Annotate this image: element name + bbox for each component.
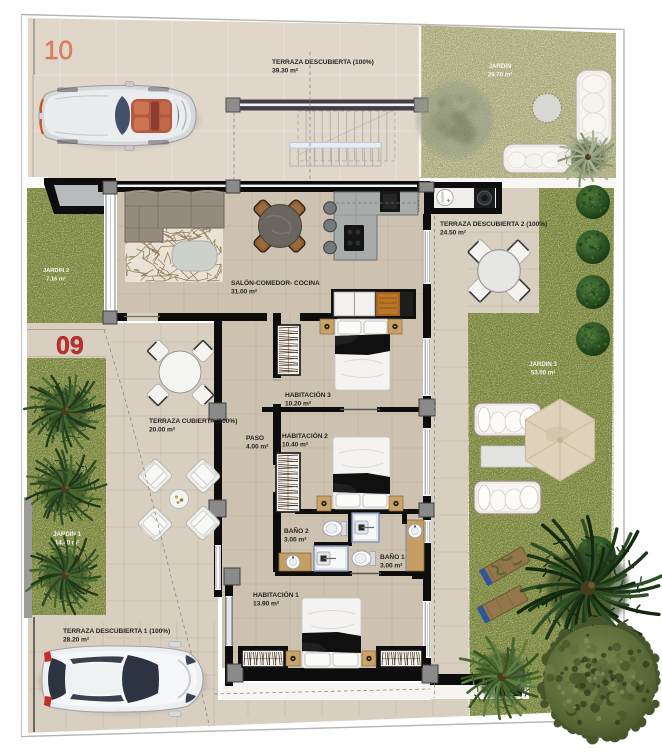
svg-text:PASO: PASO — [246, 435, 264, 442]
svg-text:SALÓN-COMEDOR- COCINA: SALÓN-COMEDOR- COCINA — [231, 278, 320, 287]
svg-text:31.00 m²: 31.00 m² — [231, 288, 258, 295]
svg-text:TERRAZA CUBIERTA (100%): TERRAZA CUBIERTA (100%) — [149, 418, 237, 425]
svg-text:HABITACIÓN 2: HABITACIÓN 2 — [282, 431, 328, 440]
svg-text:4.00 m²: 4.00 m² — [246, 443, 269, 450]
svg-text:JARDIN 2: JARDIN 2 — [43, 268, 69, 274]
svg-text:13.90 m²: 13.90 m² — [253, 600, 280, 607]
svg-text:10.40 m²: 10.40 m² — [282, 441, 309, 448]
svg-text:3.00 m²: 3.00 m² — [380, 562, 403, 569]
svg-text:BAÑO 1: BAÑO 1 — [380, 552, 405, 561]
svg-text:39.30 m²: 39.30 m² — [272, 67, 299, 74]
svg-text:TERRAZA DESCUBIERTA 2 (100%): TERRAZA DESCUBIERTA 2 (100%) — [440, 221, 547, 228]
svg-text:10.20 m²: 10.20 m² — [285, 400, 312, 407]
svg-text:53.00 m²: 53.00 m² — [531, 369, 555, 376]
svg-text:JARDIN: JARDIN — [489, 63, 512, 70]
svg-text:7.16 m²: 7.16 m² — [46, 275, 66, 282]
svg-text:24.50 m²: 24.50 m² — [440, 229, 467, 236]
svg-text:10: 10 — [44, 35, 73, 65]
svg-text:JARDIN 1: JARDIN 1 — [53, 531, 81, 538]
svg-text:JARDIN 3: JARDIN 3 — [529, 361, 557, 368]
svg-text:CALDERA: CALDERA — [441, 191, 445, 204]
svg-text:28.20 m²: 28.20 m² — [63, 636, 90, 643]
svg-text:HABITACIÓN 1: HABITACIÓN 1 — [253, 590, 299, 599]
svg-text:TERRAZA DESCUBIERTA 1 (100%): TERRAZA DESCUBIERTA 1 (100%) — [63, 628, 170, 635]
svg-text:29.70 m²: 29.70 m² — [488, 71, 512, 78]
svg-text:3.00 m²: 3.00 m² — [284, 536, 307, 543]
svg-text:BAÑO 2: BAÑO 2 — [284, 526, 309, 535]
svg-text:20.00 m²: 20.00 m² — [149, 426, 176, 433]
svg-text:HABITACIÓN 3: HABITACIÓN 3 — [285, 390, 331, 399]
svg-text:TERRAZA DESCUBIERTA (100%): TERRAZA DESCUBIERTA (100%) — [272, 59, 374, 66]
svg-text:09: 09 — [56, 332, 84, 360]
